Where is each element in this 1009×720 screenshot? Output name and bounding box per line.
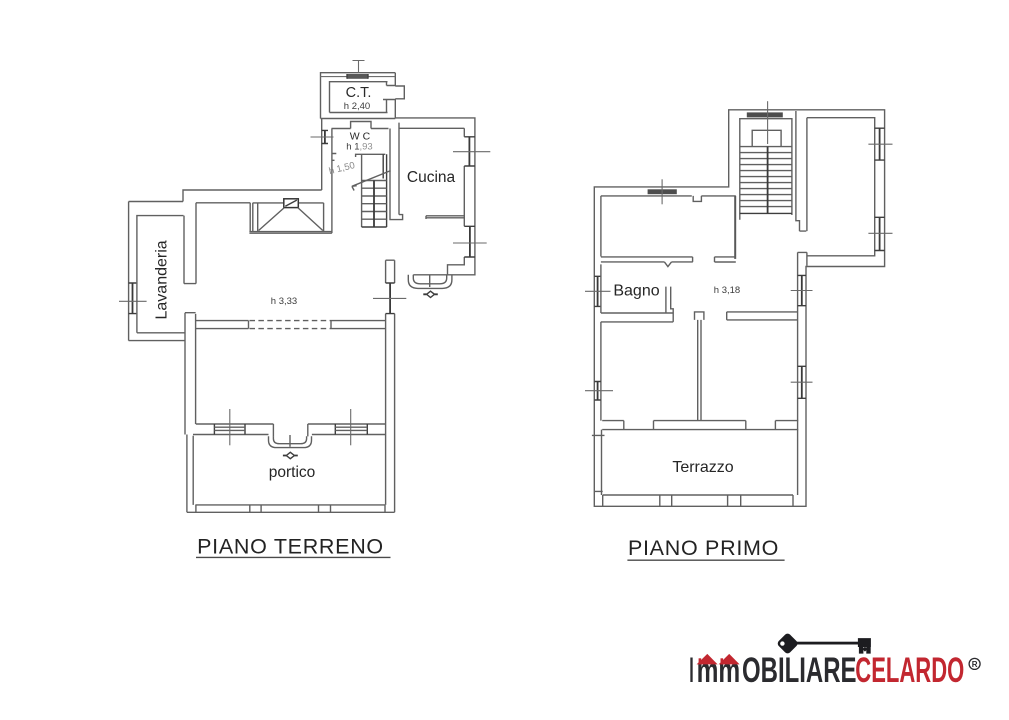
svg-text:R: R xyxy=(972,660,978,669)
svg-text:C.T.: C.T. xyxy=(346,85,372,101)
svg-text:OBILIARE: OBILIARE xyxy=(742,651,857,690)
svg-text:mm: mm xyxy=(697,651,741,690)
svg-text:h 2,40: h 2,40 xyxy=(344,101,370,112)
svg-text:h 3,18: h 3,18 xyxy=(714,285,740,296)
svg-text:h 3,33: h 3,33 xyxy=(271,296,297,307)
svg-text:Lavanderia: Lavanderia xyxy=(154,240,171,319)
svg-text:PIANO TERRENO: PIANO TERRENO xyxy=(197,535,384,559)
svg-text:I: I xyxy=(689,651,694,690)
svg-text:Bagno: Bagno xyxy=(613,283,659,300)
svg-text:Cucina: Cucina xyxy=(407,169,456,186)
svg-text:CELARDO: CELARDO xyxy=(855,651,964,690)
svg-text:Terrazzo: Terrazzo xyxy=(672,459,733,476)
svg-text:h 1,93: h 1,93 xyxy=(346,142,372,153)
svg-text:portico: portico xyxy=(269,464,316,481)
svg-text:PIANO PRIMO: PIANO PRIMO xyxy=(628,536,779,560)
